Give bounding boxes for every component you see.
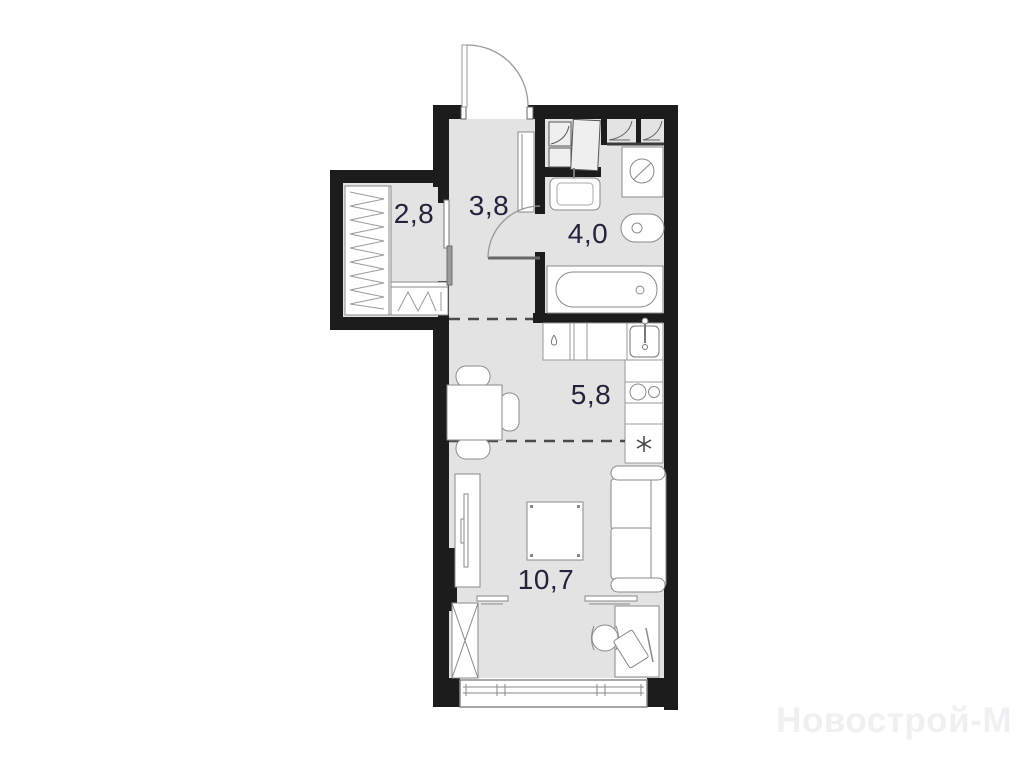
room-label-wardrobe: 2,8 [394, 198, 434, 230]
office-chair [592, 625, 619, 651]
developer-watermark: Новострой-М [776, 701, 1012, 741]
chair-bottom [456, 438, 490, 459]
bathtub [547, 266, 663, 313]
x-wardrobe [452, 603, 478, 678]
room-label-hallway: 3,8 [469, 190, 509, 222]
room-label-living-room: 10,7 [518, 564, 575, 596]
entry-door [461, 45, 533, 119]
chair-top [456, 366, 490, 387]
sofa [611, 466, 666, 592]
coffee-table [527, 502, 583, 560]
window [460, 680, 647, 707]
toilet [621, 214, 664, 242]
room-label-bathroom: 4,0 [568, 218, 608, 250]
entry-closet-contents [549, 119, 600, 170]
hall-cabinet [518, 132, 534, 212]
tv-stand [455, 474, 480, 587]
chair-right [500, 393, 519, 431]
room-label-kitchen: 5,8 [571, 379, 611, 411]
wardrobe-rack [345, 186, 391, 315]
kitchen-right-column [625, 360, 663, 463]
washing-machine [622, 147, 663, 197]
floorplan-drawing [0, 0, 1024, 768]
wardrobe-shelf [391, 282, 448, 315]
